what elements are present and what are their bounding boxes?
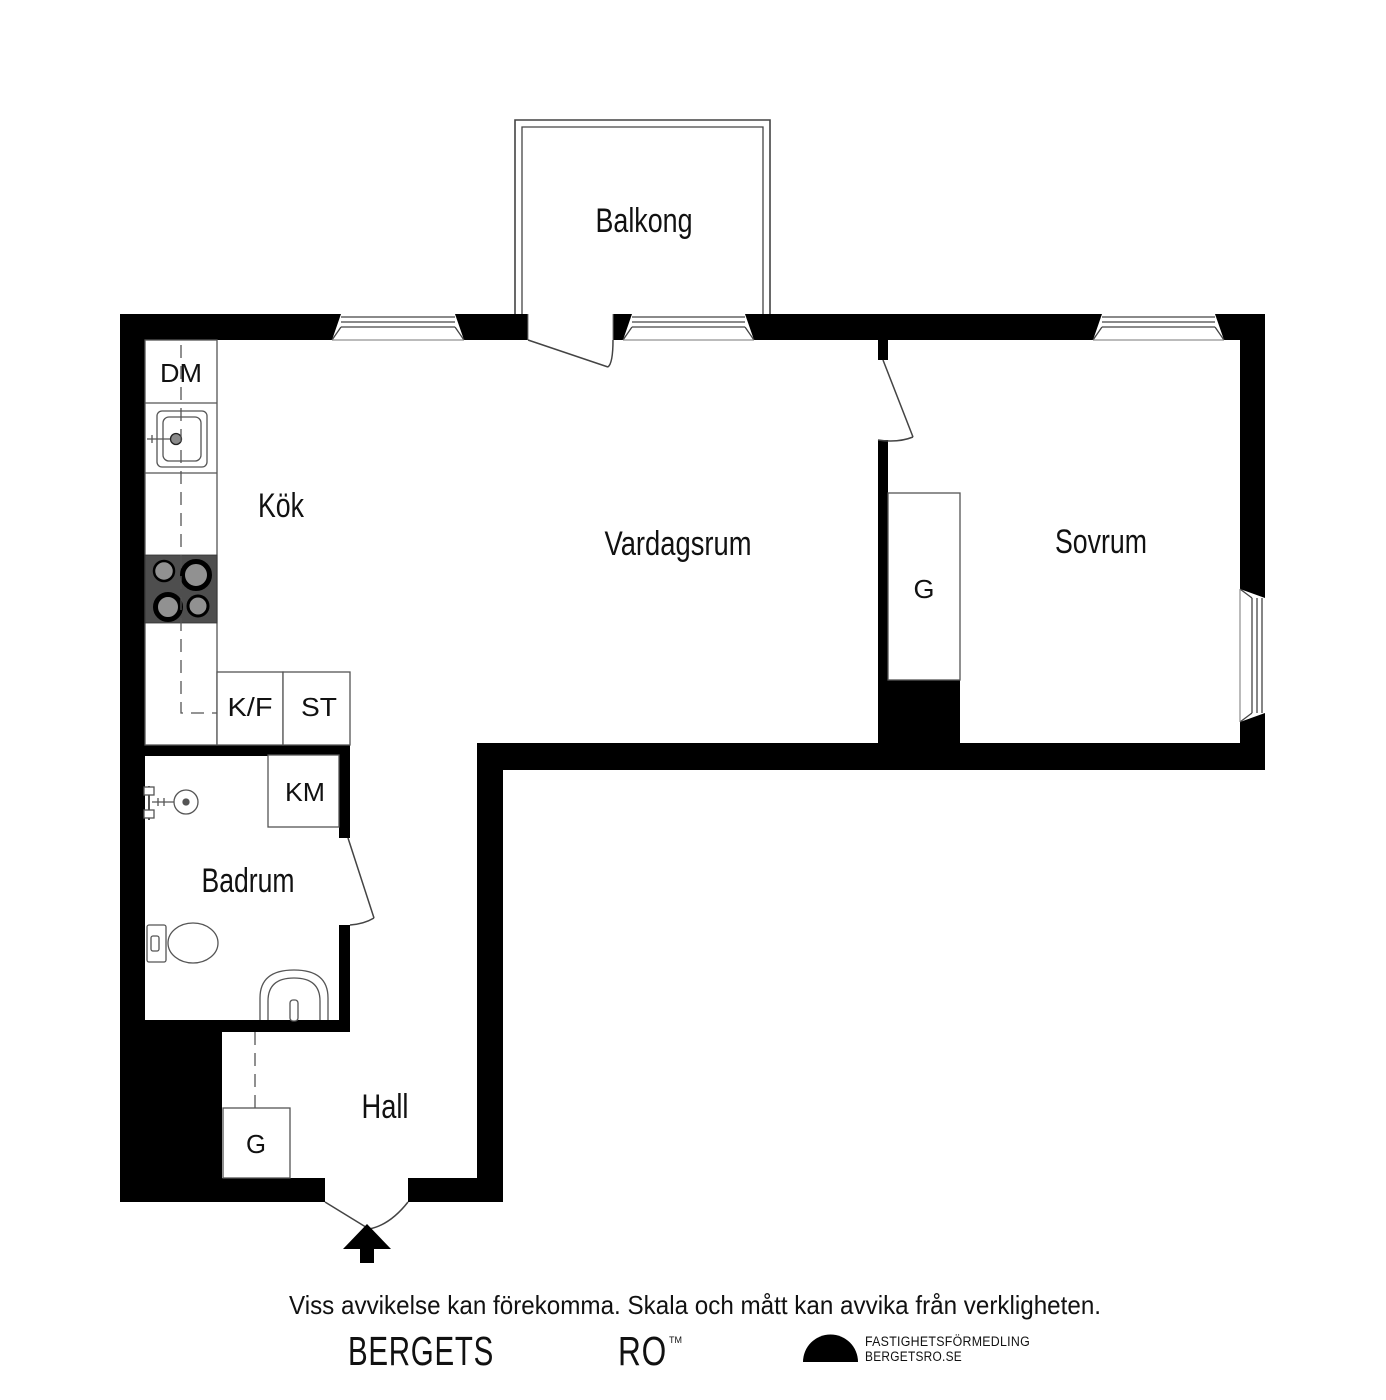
wall-bottom-left <box>120 1178 325 1202</box>
brand-name-right: RO <box>618 1328 667 1374</box>
label-pantry: ST <box>301 692 337 722</box>
wall-sovrum-divider <box>878 440 888 680</box>
room-label-sovrum: Sovrum <box>1055 523 1147 561</box>
floor-plan-page: Balkong Kök Vardagsrum Sovrum Badrum Hal… <box>0 0 1386 1400</box>
agency-line2: BERGETSRO.SE <box>865 1349 962 1364</box>
badrum-door-icon <box>348 838 374 925</box>
trademark-symbol: TM <box>669 1335 682 1345</box>
room-label-balkong: Balkong <box>596 202 693 240</box>
label-washing-machine: KM <box>285 777 325 807</box>
floor-plan-drawing: Balkong Kök Vardagsrum Sovrum Badrum Hal… <box>0 0 1386 1400</box>
brand-dome-icon <box>803 1335 858 1363</box>
window-kok-icon <box>332 314 464 340</box>
doors <box>325 314 913 1229</box>
wall-badrum-right-lower <box>339 925 350 1032</box>
wardrobes <box>223 493 960 1178</box>
wall-hall-block <box>120 1030 222 1180</box>
room-label-kok: Kök <box>258 487 305 525</box>
wall-sovrum-closet-block <box>878 680 960 743</box>
brand-row: BERGETS RO TM FASTIGHETSFÖRMEDLING BERGE… <box>348 1328 1030 1374</box>
brand-name-left: BERGETS <box>348 1328 494 1374</box>
sovrum-door-icon <box>878 360 913 441</box>
label-dishwasher: DM <box>160 358 202 388</box>
label-wardrobe-sovrum: G <box>914 574 935 604</box>
wall-hall-vardagsrum <box>477 743 503 1202</box>
window-vardagsrum-icon <box>623 314 754 340</box>
kitchen-fixtures <box>145 340 350 745</box>
wall-sovrum-divider-stub <box>878 340 888 360</box>
window-sovrum-right-icon <box>1240 589 1265 722</box>
washbasin-icon <box>260 970 328 1021</box>
balcony-door-icon <box>528 314 613 367</box>
disclaimer-text: Viss avvikelse kan förekomma. Skala och … <box>289 1290 1101 1320</box>
entrance-arrow-icon <box>343 1224 391 1263</box>
wall-badrum-right-upper <box>339 743 350 838</box>
toilet-icon <box>147 923 218 963</box>
room-label-vardagsrum: Vardagsrum <box>605 525 752 563</box>
room-label-badrum: Badrum <box>202 862 295 900</box>
wall-livingroom-bottom <box>477 743 1265 770</box>
agency-line1: FASTIGHETSFÖRMEDLING <box>865 1334 1030 1349</box>
room-label-hall: Hall <box>362 1088 409 1126</box>
windows <box>332 314 1265 722</box>
label-wardrobe-hall: G <box>246 1129 266 1159</box>
window-sovrum-top-icon <box>1093 314 1224 340</box>
label-fridge-freezer: K/F <box>228 692 273 722</box>
shower-mixer-icon <box>144 786 198 820</box>
